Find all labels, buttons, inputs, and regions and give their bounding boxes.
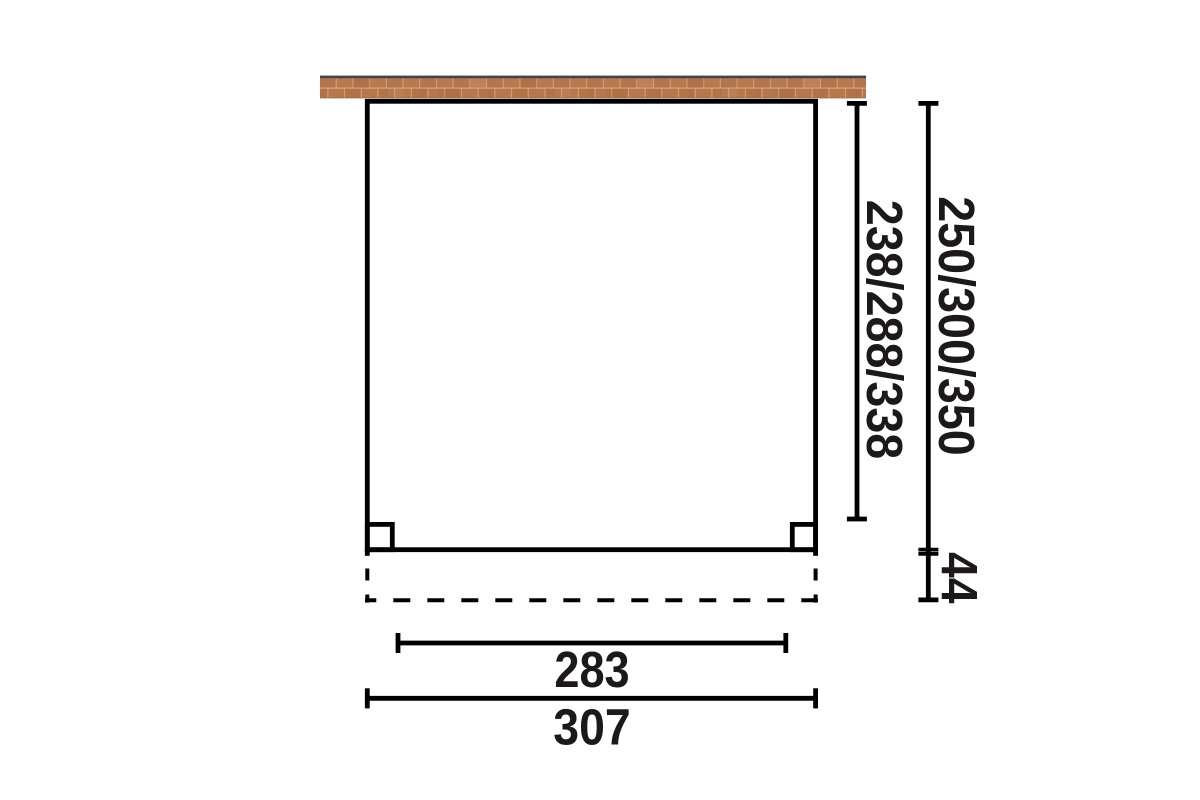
svg-text:307: 307 bbox=[553, 699, 630, 755]
svg-text:238/288/338: 238/288/338 bbox=[856, 200, 912, 459]
svg-text:250/300/350: 250/300/350 bbox=[927, 196, 983, 455]
svg-text:44: 44 bbox=[930, 552, 986, 604]
svg-text:283: 283 bbox=[554, 641, 629, 698]
